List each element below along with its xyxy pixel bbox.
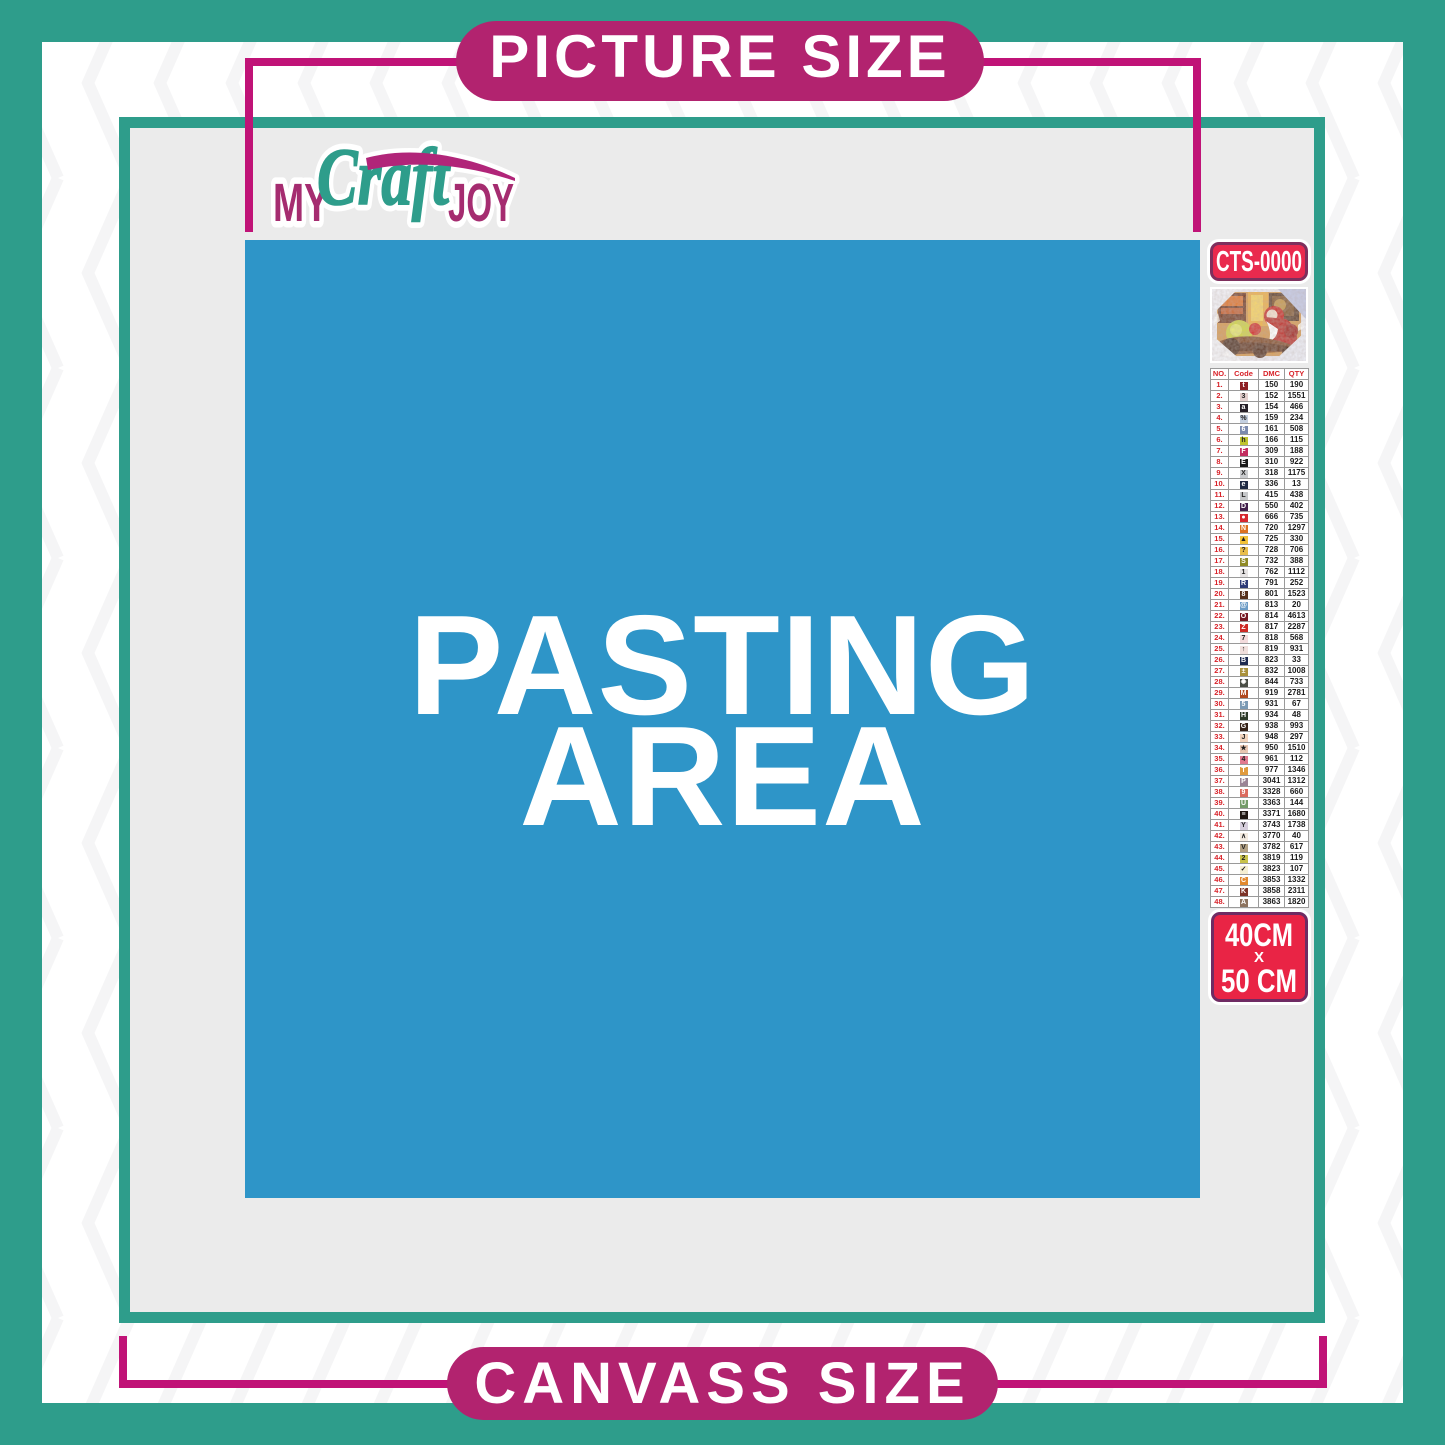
svg-text:50 CM: 50 CM [1221, 963, 1297, 999]
svg-text:Craft: Craft [317, 138, 451, 222]
svg-text:JOY: JOY [448, 173, 514, 233]
svg-text:CTS-0000: CTS-0000 [1216, 246, 1302, 278]
svg-text:40CM: 40CM [1225, 917, 1293, 953]
